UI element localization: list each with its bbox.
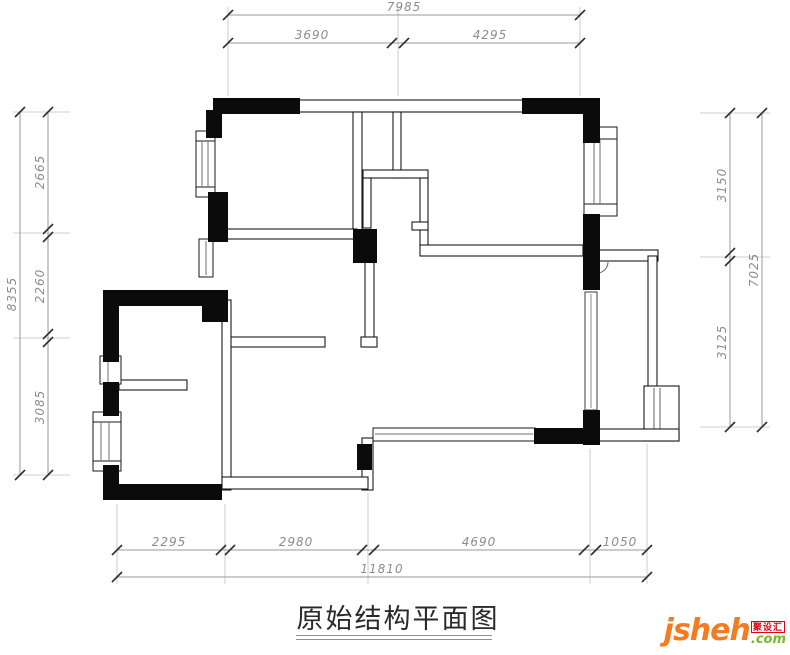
dim-label-top-seg2: 4295 bbox=[473, 28, 508, 42]
dim-label-left-overall: 8355 bbox=[5, 277, 19, 312]
window-living-bottom bbox=[373, 428, 535, 441]
dim-label-left-seg3: 3085 bbox=[33, 390, 47, 425]
logo-brand-text: jsheh bbox=[664, 616, 750, 646]
dim-label-top-seg1: 3690 bbox=[295, 28, 330, 42]
dimension-chain-bottom: 2295 2980 4690 1050 11810 bbox=[112, 535, 652, 582]
dim-label-right-seg2: 3125 bbox=[715, 325, 729, 360]
balcony bbox=[597, 250, 679, 441]
window-left-upper bbox=[196, 131, 215, 197]
dimension-chain-top: 7985 3690 4295 bbox=[223, 0, 585, 48]
dim-label-right-overall: 7025 bbox=[747, 253, 761, 288]
floor-plan-canvas: 7985 3690 4295 8355 2665 2260 3085 3150 … bbox=[0, 0, 790, 655]
drawing-title: 原始结构平面图 bbox=[270, 597, 526, 636]
dim-label-bottom-seg4: 1050 bbox=[603, 535, 638, 549]
dim-label-top-overall: 7985 bbox=[387, 0, 422, 14]
site-logo: jsheh 聚设汇 .com bbox=[664, 616, 786, 646]
logo-domain-suffix: .com bbox=[751, 633, 786, 646]
title-underline bbox=[296, 635, 492, 640]
logo-side: 聚设汇 .com bbox=[751, 621, 786, 646]
dim-label-left-seg1: 2665 bbox=[33, 155, 47, 190]
dimension-chain-right: 3150 3125 7025 bbox=[715, 108, 767, 432]
floor-plan-page: 7985 3690 4295 8355 2665 2260 3085 3150 … bbox=[0, 0, 790, 655]
window-left-mid bbox=[199, 239, 213, 277]
dim-label-bottom-seg1: 2295 bbox=[152, 535, 187, 549]
dimension-chain-left: 8355 2665 2260 3085 bbox=[5, 107, 53, 480]
dim-label-bottom-seg2: 2980 bbox=[279, 535, 314, 549]
window-left-lower-large bbox=[93, 412, 121, 471]
dim-label-right-seg1: 3150 bbox=[715, 168, 729, 203]
dim-label-bottom-overall: 11810 bbox=[360, 562, 403, 576]
dim-label-left-seg2: 2260 bbox=[33, 269, 47, 304]
dim-label-bottom-seg3: 4690 bbox=[462, 535, 497, 549]
balcony-door-right bbox=[585, 292, 597, 410]
